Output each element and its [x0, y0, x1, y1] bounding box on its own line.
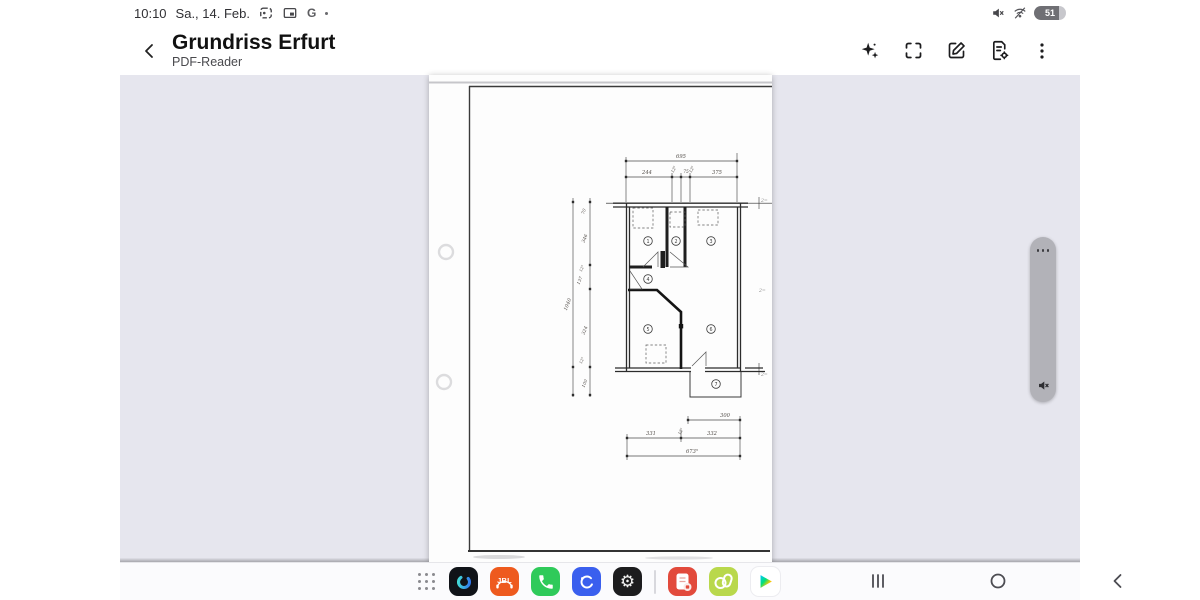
room-number: 2 — [674, 239, 677, 245]
app-icon-settings[interactable]: ⚙ — [613, 567, 642, 596]
page-title: Grundriss Erfurt — [172, 31, 335, 54]
app-icon-lime[interactable] — [709, 567, 738, 596]
edge-panel-more-icon[interactable] — [1030, 249, 1056, 252]
app-icon-dark-swirl[interactable] — [449, 567, 478, 596]
edit-annotate-icon[interactable] — [944, 39, 968, 63]
room-number: 5 — [646, 327, 649, 333]
dim-label: 331 — [646, 431, 656, 437]
dim-label: 100 — [582, 379, 590, 389]
recents-button[interactable] — [863, 566, 893, 596]
dim-label: 375 — [712, 170, 722, 176]
dim-label: 70 — [581, 208, 588, 215]
picture-in-picture-icon — [283, 6, 298, 21]
more-options-icon[interactable] — [1030, 39, 1054, 63]
sound-muted-icon — [990, 6, 1005, 21]
notification-dot — [325, 12, 328, 15]
page-subtitle: PDF-Reader — [172, 56, 335, 70]
dim-label: 695 — [676, 154, 686, 160]
taskbar-dock: JBL ⚙ — [418, 566, 781, 597]
edge-panel-mute-icon[interactable] — [1030, 379, 1056, 392]
margin-note: 2= — [760, 372, 768, 378]
taskbar: JBL ⚙ — [120, 562, 1080, 600]
device-screen: 10:10 Sa., 14. Feb. G 51 Grund — [0, 0, 1200, 600]
dim-label: 1040 — [563, 297, 574, 312]
dim-label: 244 — [641, 170, 652, 176]
room-number: 3 — [709, 239, 712, 245]
dim-label: 300 — [720, 413, 731, 419]
margin-note: 2= — [758, 288, 766, 294]
dim-label: 332 — [707, 431, 717, 437]
document-settings-icon[interactable] — [987, 39, 1011, 63]
room-number: 6 — [709, 327, 712, 333]
app-icon-phone[interactable] — [531, 567, 560, 596]
clock: 10:10 — [134, 6, 167, 21]
status-bar: 10:10 Sa., 14. Feb. G 51 — [120, 0, 1080, 26]
dim-label: 324 — [581, 325, 590, 335]
home-button[interactable] — [983, 566, 1013, 596]
app-icon-internet[interactable] — [572, 567, 601, 596]
app-icon-notes-red[interactable] — [668, 567, 697, 596]
screen-capture-icon — [259, 6, 274, 21]
jbl-label: JBL — [490, 576, 519, 585]
back-button[interactable] — [136, 37, 164, 65]
edge-panel-handle[interactable] — [1030, 237, 1056, 402]
fullscreen-icon[interactable] — [901, 39, 925, 63]
room-number: 1 — [646, 239, 649, 245]
ai-assist-icon[interactable] — [858, 39, 882, 63]
date: Sa., 14. Feb. — [176, 6, 250, 21]
google-app-badge: G — [307, 6, 316, 20]
room-number: 4 — [646, 277, 649, 283]
wifi-off-icon — [1012, 6, 1027, 21]
pdf-page[interactable]: 1 2 3 4 5 6 7 695 244 12⁵ 75 12⁵ 375 70 … — [429, 75, 772, 562]
app-icon-jbl[interactable]: JBL — [490, 567, 519, 596]
dim-label: 12⁵ — [578, 264, 585, 272]
navigation-bar — [858, 566, 1138, 596]
gear-icon: ⚙ — [620, 573, 635, 590]
app-header: Grundriss Erfurt PDF-Reader — [120, 26, 1080, 75]
dock-divider — [654, 570, 656, 594]
dim-label: 673⁵ — [686, 449, 699, 455]
dim-label: 12⁵ — [688, 165, 696, 174]
dim-label: 137 — [577, 276, 585, 286]
dim-label: 346 — [581, 233, 590, 243]
back-nav-button[interactable] — [1103, 566, 1133, 596]
app-icon-play-store[interactable] — [750, 566, 781, 597]
dim-label: 12⁵ — [578, 356, 585, 364]
dim-label: 12⁵ — [677, 427, 685, 436]
dim-label: 12⁵ — [670, 165, 678, 174]
battery-indicator: 51 — [1034, 6, 1066, 20]
floor-plan-drawing: 1 2 3 4 5 6 7 695 244 12⁵ 75 12⁵ 375 70 … — [429, 75, 772, 562]
app-drawer-button[interactable] — [418, 573, 435, 590]
margin-note: 2= — [760, 198, 768, 204]
room-number: 7 — [714, 382, 717, 388]
